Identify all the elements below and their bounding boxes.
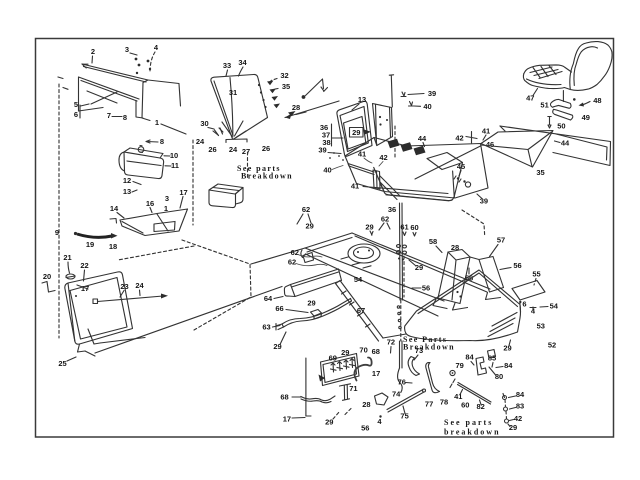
svg-text:40: 40 [423, 102, 431, 111]
svg-text:42: 42 [514, 414, 522, 423]
svg-text:28: 28 [362, 400, 370, 409]
svg-text:18: 18 [109, 242, 117, 251]
svg-text:77: 77 [425, 400, 433, 409]
svg-text:76: 76 [398, 378, 406, 387]
svg-text:34: 34 [238, 58, 247, 67]
svg-text:42: 42 [455, 134, 463, 143]
svg-text:6: 6 [74, 110, 78, 119]
svg-text:29: 29 [503, 344, 511, 353]
svg-text:33: 33 [223, 61, 231, 70]
svg-text:41: 41 [358, 150, 366, 159]
svg-text:11: 11 [171, 161, 179, 170]
svg-text:29: 29 [365, 223, 373, 232]
svg-text:29: 29 [352, 128, 360, 137]
svg-text:17: 17 [179, 188, 187, 197]
svg-text:8: 8 [123, 113, 127, 122]
svg-text:84: 84 [516, 390, 525, 399]
svg-text:21: 21 [63, 253, 71, 262]
svg-text:56: 56 [422, 284, 430, 293]
svg-text:16: 16 [146, 199, 154, 208]
svg-text:29: 29 [415, 263, 423, 272]
svg-text:85: 85 [488, 354, 496, 363]
svg-text:36: 36 [388, 205, 396, 214]
svg-text:80: 80 [495, 372, 503, 381]
svg-text:19: 19 [86, 240, 94, 249]
svg-text:10: 10 [170, 151, 178, 160]
svg-text:8: 8 [160, 137, 164, 146]
svg-text:79: 79 [456, 361, 464, 370]
svg-text:62: 62 [302, 205, 310, 214]
svg-text:24: 24 [135, 281, 144, 290]
svg-text:68: 68 [372, 347, 380, 356]
svg-text:Breakdown: Breakdown [403, 343, 455, 352]
svg-text:2: 2 [91, 47, 95, 56]
svg-text:54: 54 [550, 302, 559, 311]
svg-text:13: 13 [123, 187, 131, 196]
svg-text:56: 56 [361, 424, 369, 433]
svg-text:44: 44 [561, 139, 570, 148]
svg-text:26: 26 [262, 144, 270, 153]
svg-text:breakdown: breakdown [444, 428, 501, 437]
svg-text:26: 26 [208, 145, 216, 154]
svg-text:73: 73 [415, 346, 423, 355]
svg-text:84: 84 [504, 361, 513, 370]
svg-text:39: 39 [428, 89, 436, 98]
svg-text:7: 7 [107, 111, 111, 120]
svg-text:61: 61 [400, 223, 408, 232]
svg-text:44: 44 [418, 134, 427, 143]
svg-text:28: 28 [292, 103, 300, 112]
svg-text:51: 51 [540, 101, 548, 110]
svg-text:63: 63 [262, 323, 270, 332]
svg-text:72: 72 [387, 338, 395, 347]
svg-text:17: 17 [283, 415, 291, 424]
svg-text:83: 83 [516, 402, 524, 411]
svg-text:60: 60 [461, 401, 469, 410]
svg-text:40: 40 [323, 166, 331, 175]
svg-text:68: 68 [280, 393, 288, 402]
svg-text:39: 39 [318, 146, 326, 155]
svg-text:54: 54 [354, 275, 363, 284]
svg-text:29: 29 [306, 222, 314, 231]
svg-text:62: 62 [381, 215, 389, 224]
svg-text:24: 24 [229, 145, 238, 154]
svg-text:Breakdown: Breakdown [241, 172, 293, 181]
svg-text:35: 35 [282, 82, 290, 91]
svg-text:6: 6 [522, 300, 526, 309]
svg-text:27: 27 [242, 147, 250, 156]
svg-text:25: 25 [58, 359, 66, 368]
svg-text:64: 64 [264, 294, 273, 303]
svg-text:29: 29 [341, 348, 349, 357]
svg-text:49: 49 [582, 113, 590, 122]
svg-text:24: 24 [196, 137, 205, 146]
svg-text:53: 53 [537, 322, 545, 331]
svg-text:62: 62 [288, 258, 296, 267]
svg-text:17: 17 [372, 369, 380, 378]
svg-text:71: 71 [349, 384, 357, 393]
svg-text:84: 84 [465, 353, 474, 362]
svg-text:70: 70 [359, 346, 367, 355]
svg-text:1: 1 [155, 118, 159, 127]
svg-text:42: 42 [379, 153, 387, 162]
svg-text:3: 3 [125, 45, 129, 54]
svg-text:69: 69 [329, 354, 337, 363]
svg-text:45: 45 [457, 162, 465, 171]
svg-text:52: 52 [548, 341, 556, 350]
svg-text:29: 29 [307, 299, 315, 308]
svg-text:28: 28 [451, 243, 459, 252]
svg-text:29: 29 [325, 418, 333, 427]
svg-text:41: 41 [351, 182, 359, 191]
svg-text:67: 67 [357, 306, 365, 315]
svg-text:35: 35 [536, 168, 544, 177]
svg-text:13: 13 [358, 95, 366, 104]
svg-text:14: 14 [110, 204, 119, 213]
svg-text:41: 41 [482, 127, 490, 136]
svg-text:20: 20 [43, 272, 51, 281]
svg-text:55: 55 [532, 270, 540, 279]
svg-text:23: 23 [120, 282, 128, 291]
svg-text:3: 3 [165, 194, 169, 203]
svg-text:32: 32 [280, 71, 288, 80]
svg-text:66: 66 [275, 304, 283, 313]
svg-text:29: 29 [509, 423, 517, 432]
svg-text:1: 1 [164, 204, 168, 213]
svg-text:30: 30 [200, 119, 208, 128]
svg-text:57: 57 [497, 236, 505, 245]
svg-text:56: 56 [513, 261, 521, 270]
svg-text:62: 62 [291, 248, 299, 257]
svg-text:58: 58 [429, 237, 437, 246]
svg-text:22: 22 [80, 261, 88, 270]
svg-text:50: 50 [557, 122, 565, 131]
svg-text:See parts: See parts [444, 418, 493, 427]
svg-text:60: 60 [410, 223, 418, 232]
svg-text:31: 31 [229, 88, 237, 97]
svg-text:74: 74 [392, 390, 401, 399]
svg-text:5: 5 [74, 100, 78, 109]
svg-text:78: 78 [440, 398, 448, 407]
svg-text:12: 12 [123, 176, 131, 185]
svg-text:48: 48 [593, 96, 601, 105]
